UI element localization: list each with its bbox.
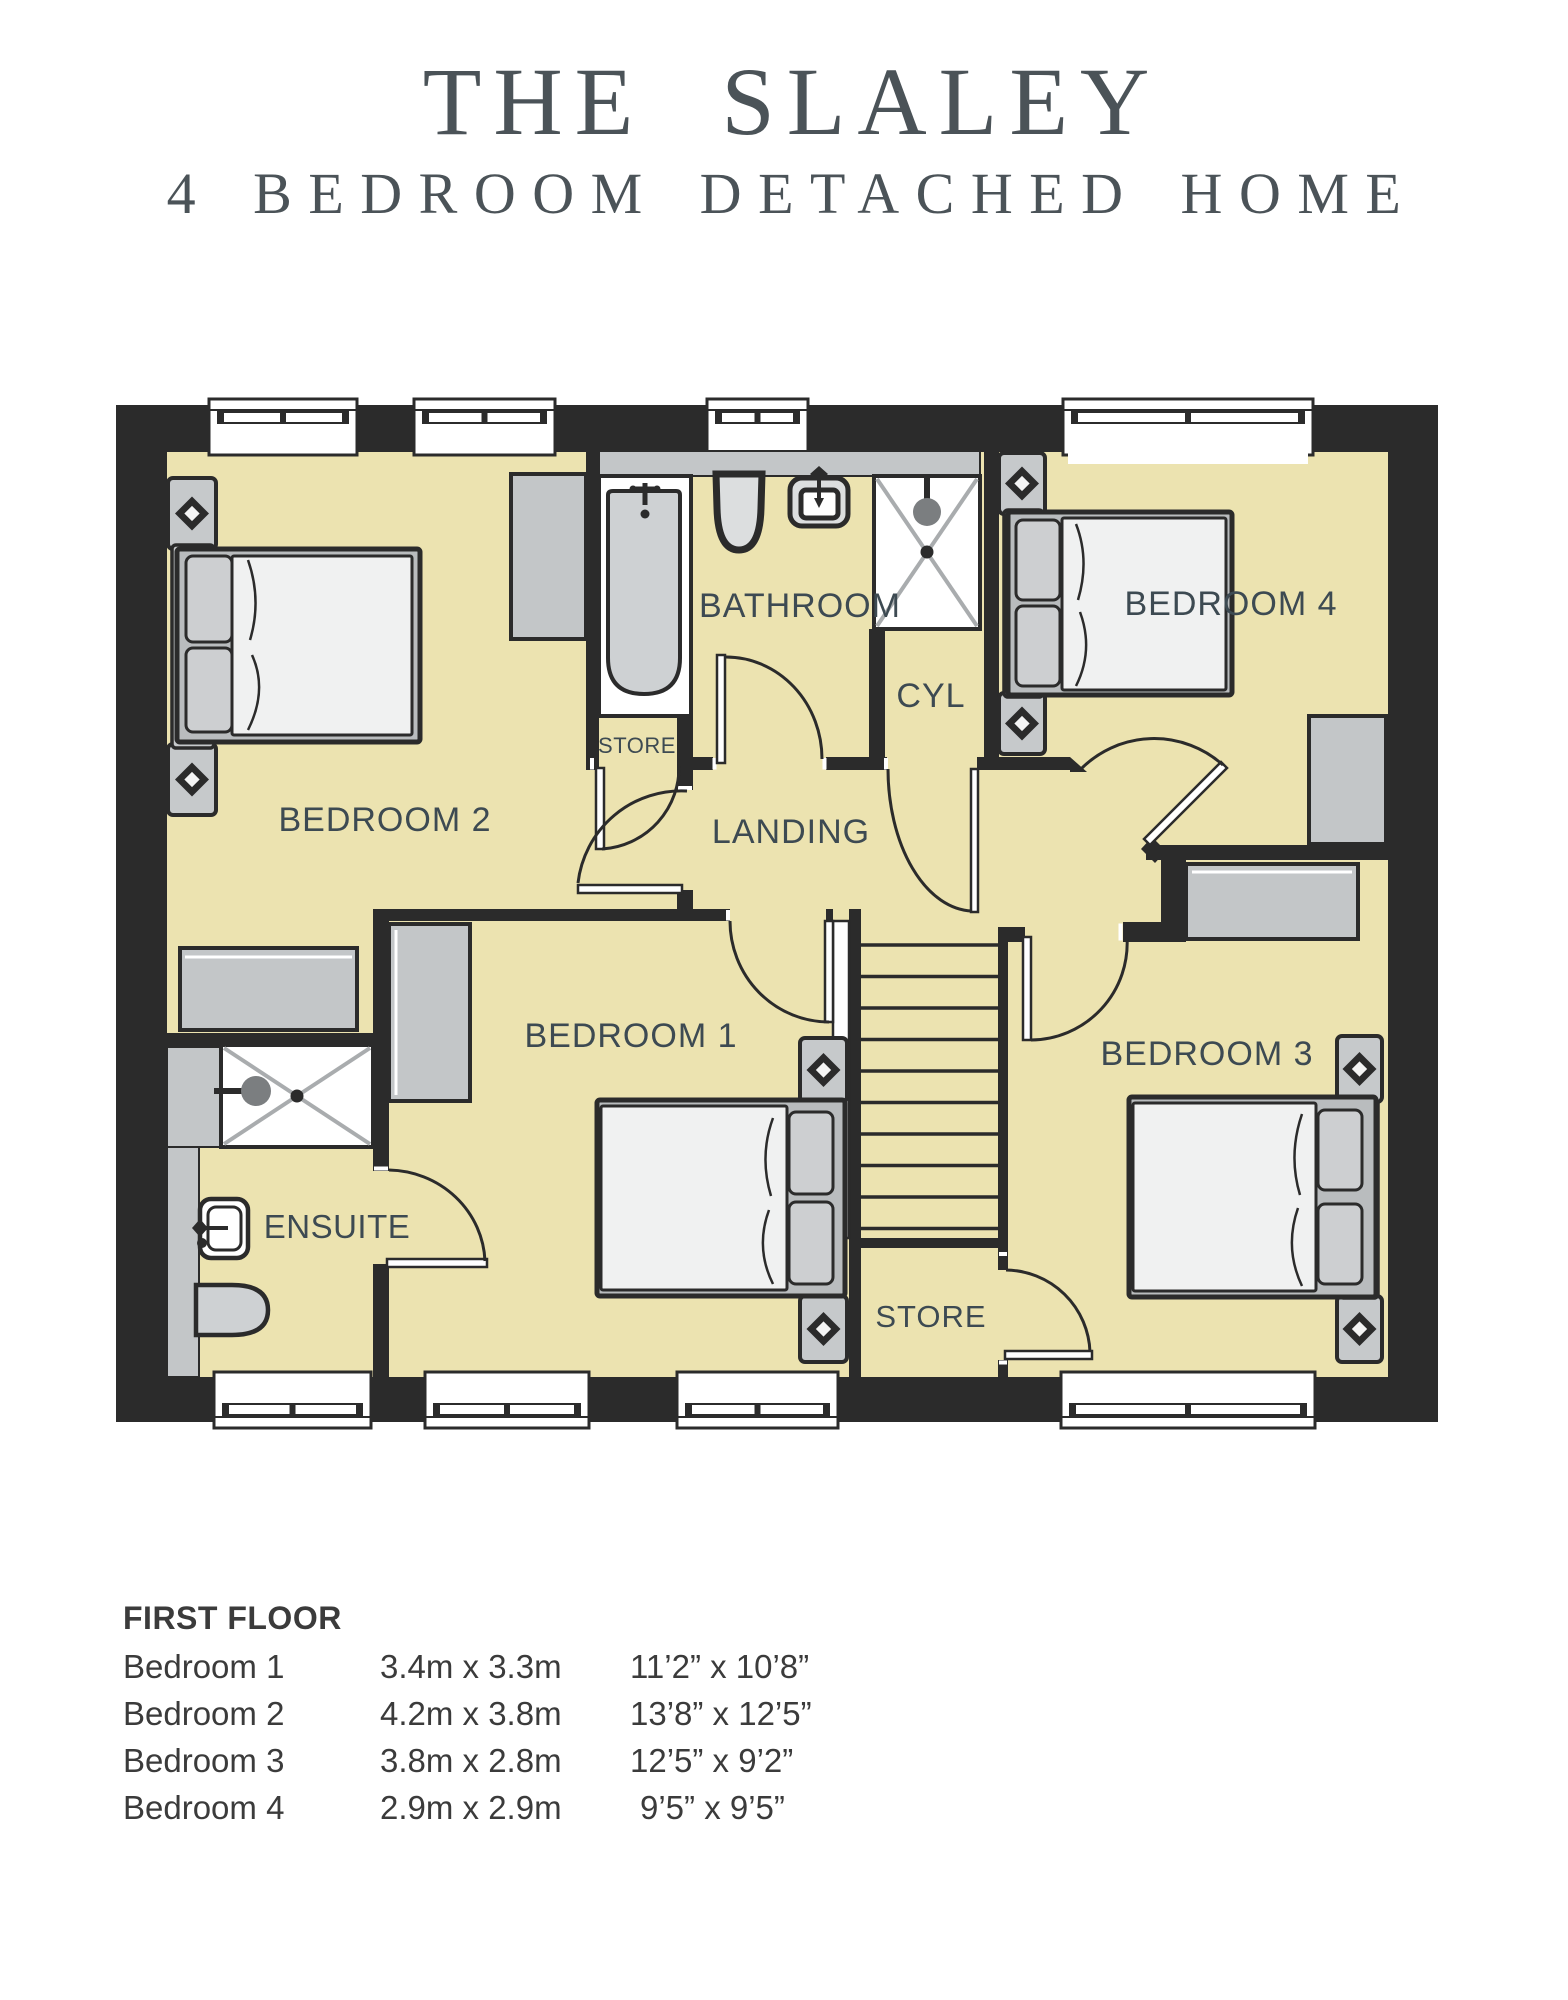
svg-text:Bedroom 3: Bedroom 3 (123, 1742, 284, 1779)
svg-text:13’8” x 12’5”: 13’8” x 12’5” (630, 1695, 812, 1732)
svg-text:BEDROOM 1: BEDROOM 1 (524, 1017, 737, 1055)
svg-text:BATHROOM: BATHROOM (699, 587, 901, 625)
svg-text:ENSUITE: ENSUITE (264, 1208, 411, 1245)
svg-text:4.2m x 3.8m: 4.2m x 3.8m (380, 1695, 562, 1732)
svg-text:STORE: STORE (875, 1299, 986, 1334)
svg-text:BEDROOM 3: BEDROOM 3 (1100, 1035, 1313, 1073)
svg-text:9’5” x 9’5”: 9’5” x 9’5” (640, 1789, 785, 1826)
svg-text:BEDROOM 2: BEDROOM 2 (278, 801, 491, 839)
svg-text:Bedroom 4: Bedroom 4 (123, 1789, 284, 1826)
svg-text:12’5” x 9’2”: 12’5” x 9’2” (630, 1742, 793, 1779)
svg-text:CYL: CYL (896, 677, 965, 715)
svg-text:LANDING: LANDING (712, 813, 870, 851)
svg-text:STORE: STORE (598, 733, 676, 758)
svg-text:Bedroom 2: Bedroom 2 (123, 1695, 284, 1732)
svg-text:4 BEDROOM DETACHED HOME: 4 BEDROOM DETACHED HOME (167, 161, 1418, 226)
svg-text:3.8m x 2.8m: 3.8m x 2.8m (380, 1742, 562, 1779)
svg-text:11’2” x 10’8”: 11’2” x 10’8” (630, 1648, 809, 1685)
svg-text:THE SLALEY: THE SLALEY (423, 48, 1162, 155)
svg-text:FIRST FLOOR: FIRST FLOOR (123, 1600, 342, 1636)
svg-text:3.4m x 3.3m: 3.4m x 3.3m (380, 1648, 562, 1685)
svg-text:2.9m x 2.9m: 2.9m x 2.9m (380, 1789, 562, 1826)
svg-text:BEDROOM 4: BEDROOM 4 (1124, 585, 1337, 623)
svg-text:Bedroom 1: Bedroom 1 (123, 1648, 284, 1685)
